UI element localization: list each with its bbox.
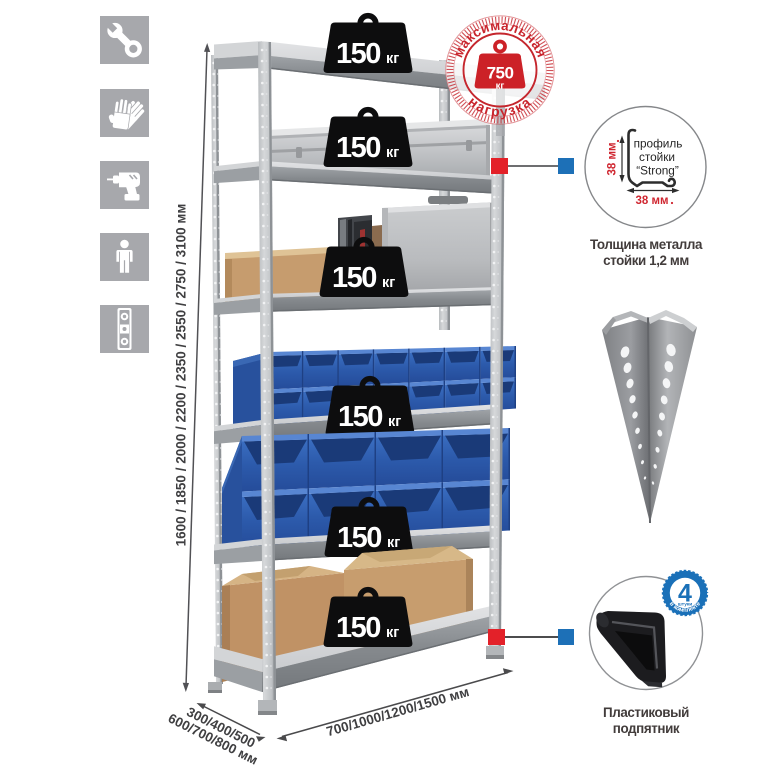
svg-text:Пластиковый: Пластиковый bbox=[603, 705, 689, 720]
svg-text:кг: кг bbox=[387, 535, 400, 551]
svg-text:150: 150 bbox=[336, 132, 380, 164]
svg-text:кг: кг bbox=[386, 51, 399, 67]
svg-text:кг: кг bbox=[388, 414, 401, 430]
svg-text:стойки: стойки bbox=[639, 150, 675, 164]
svg-text:150: 150 bbox=[332, 262, 376, 294]
svg-text:150: 150 bbox=[337, 522, 381, 554]
svg-text:Толщина металла: Толщина металла bbox=[590, 237, 703, 252]
svg-text:кг: кг bbox=[386, 145, 399, 161]
svg-text:кг: кг bbox=[382, 275, 395, 291]
svg-text:стойки 1,2 мм: стойки 1,2 мм bbox=[603, 253, 689, 268]
svg-text:38 мм: 38 мм bbox=[635, 195, 668, 207]
svg-text:150: 150 bbox=[338, 401, 382, 433]
svg-text:“Strong”: “Strong” bbox=[636, 164, 679, 178]
svg-text:профиль: профиль bbox=[634, 137, 683, 151]
svg-text:150: 150 bbox=[336, 38, 380, 70]
svg-text:кг: кг bbox=[496, 81, 505, 92]
svg-text:кг: кг bbox=[386, 625, 399, 641]
svg-text:38 мм: 38 мм bbox=[607, 142, 619, 175]
svg-text:150: 150 bbox=[336, 612, 380, 644]
svg-text:штуки: штуки bbox=[678, 602, 693, 607]
svg-text:1600 / 1850 / 2000 / 2200 / 23: 1600 / 1850 / 2000 / 2200 / 2350 / 2550 … bbox=[174, 204, 189, 547]
svg-text:подпятник: подпятник bbox=[613, 721, 680, 736]
